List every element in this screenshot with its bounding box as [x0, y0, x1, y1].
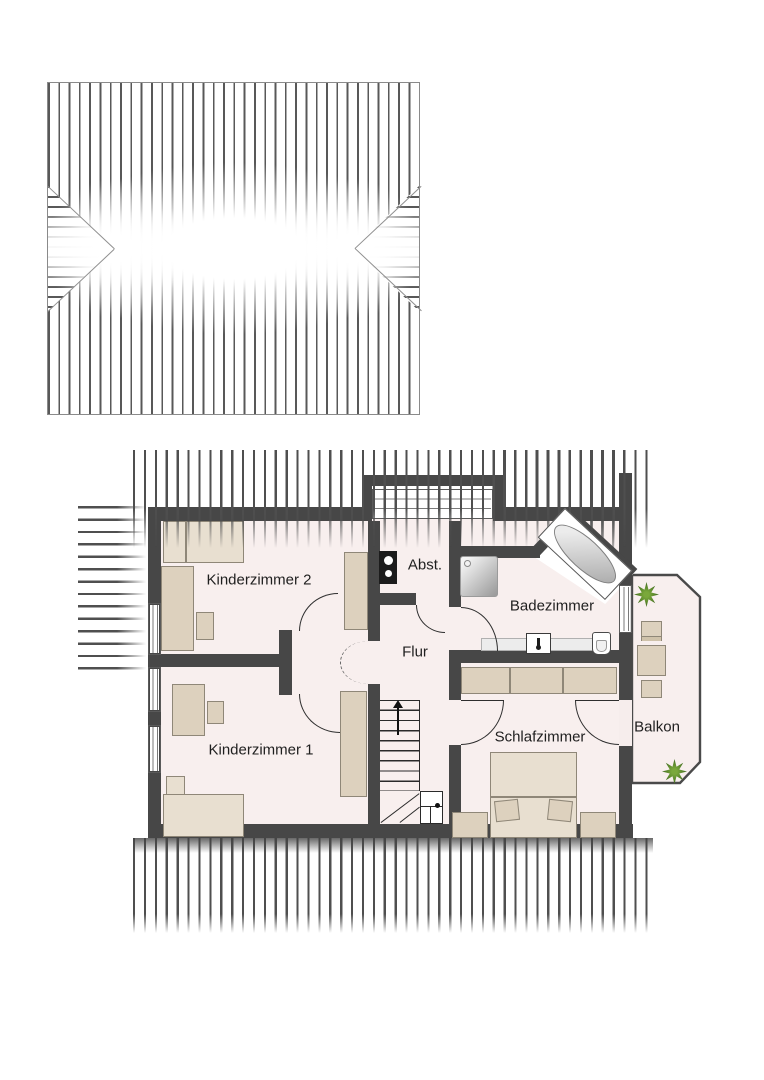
balcony-door-threshold	[619, 700, 632, 746]
stairs-newel-dot	[435, 803, 440, 808]
stairs-arrow-head	[393, 700, 403, 708]
wall	[449, 663, 461, 700]
wardrobe	[344, 552, 368, 630]
room-label-flur: Flur	[402, 645, 428, 660]
plant-icon	[634, 582, 659, 607]
balcony-chair-back	[642, 636, 661, 641]
bed-pillow	[166, 776, 185, 796]
room-label-kinderzimmer1: Kinderzimmer 1	[208, 743, 313, 758]
water-heater-burner	[384, 556, 393, 565]
wall	[279, 630, 292, 695]
balcony	[628, 571, 704, 787]
wardrobe	[340, 691, 367, 797]
bed	[163, 794, 244, 837]
nightstand	[580, 812, 616, 838]
wall	[368, 684, 380, 824]
pillow	[494, 799, 520, 822]
balcony-table	[637, 645, 666, 676]
pillow	[547, 799, 573, 822]
wardrobe	[461, 667, 617, 694]
window	[148, 725, 161, 773]
double-bed	[490, 752, 577, 838]
roof-ridge-glow	[48, 83, 419, 414]
washbasin-drain	[536, 645, 541, 650]
wardrobe-divider	[562, 668, 564, 693]
wardrobe-divider	[509, 668, 511, 693]
desk	[172, 684, 205, 736]
chair	[196, 612, 214, 640]
wall	[148, 654, 279, 667]
wall	[368, 593, 416, 605]
window	[148, 667, 161, 712]
balcony-door-bath	[619, 585, 632, 633]
chair	[207, 701, 224, 724]
floorplan-page: Kinderzimmer 2 Kinderzimmer 1 Flur Abst.…	[0, 0, 764, 1080]
room-label-abstellraum: Abst.	[408, 558, 442, 573]
room-label-badezimmer: Badezimmer	[510, 599, 594, 614]
bed-blanket-line	[491, 796, 576, 798]
stairs-straight-run	[380, 700, 420, 791]
water-heater-burner	[385, 570, 392, 577]
plant-icon	[662, 759, 687, 784]
room-label-kinderzimmer2: Kinderzimmer 2	[206, 573, 311, 588]
wall	[619, 633, 632, 700]
room-label-balkon: Balkon	[634, 720, 680, 735]
bottom-wall-shadow	[133, 838, 653, 853]
stairs-winder-tread	[430, 807, 431, 824]
room-label-schlafzimmer: Schlafzimmer	[495, 730, 586, 745]
balcony-chair	[641, 680, 662, 698]
stairs-winder	[420, 791, 443, 824]
wall	[619, 746, 632, 838]
toilet-seat	[596, 640, 607, 652]
window	[148, 603, 161, 655]
nightstand	[452, 812, 488, 838]
shower-drain	[464, 560, 471, 567]
desk	[161, 566, 194, 651]
stairs-direction-arrow	[397, 705, 399, 735]
roof-plan	[47, 82, 420, 415]
